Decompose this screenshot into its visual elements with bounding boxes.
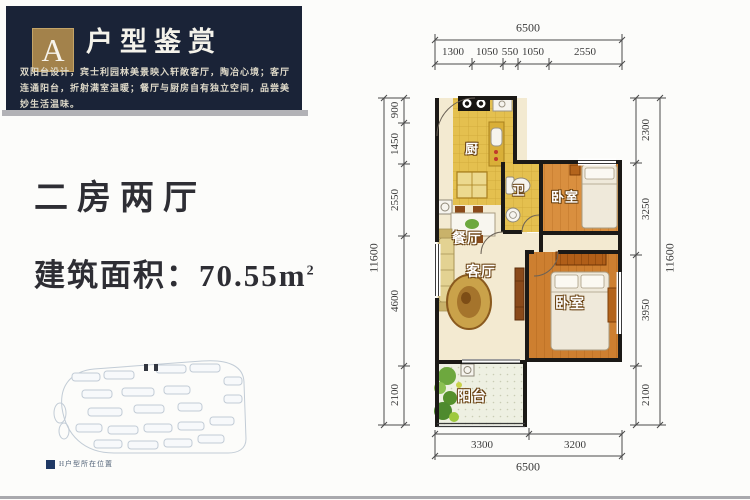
dim-right-seg-3: 3950 (640, 299, 652, 321)
flyer-page: A 户型鉴赏 双阳台设计，宾士利园林美景映入轩敞客厅，陶冶心境；客厅连通阳台，折… (0, 0, 750, 500)
page-bottom-border (0, 496, 750, 499)
dim-top-seg-4: 1050 (522, 46, 544, 58)
legend-label: H户型所在位置 (59, 459, 113, 469)
dim-top-seg-2: 1050 (476, 46, 498, 58)
dim-top-seg-5: 2550 (574, 46, 596, 58)
dim-left-total: 11600 (367, 243, 382, 273)
room-label-bathroom: 卫 (512, 182, 525, 199)
dim-left-seg-4: 4600 (389, 290, 401, 312)
dim-bottom-seg-1: 3300 (471, 439, 493, 451)
room-label-bedroom-top: 卧室 (551, 187, 579, 206)
dim-left-seg-1: 900 (389, 102, 401, 119)
room-label-living: 客厅 (466, 261, 496, 281)
room-label-bedroom-bottom: 卧室 (555, 293, 585, 313)
legend-swatch-icon (46, 460, 55, 469)
dim-left-seg-5: 2100 (389, 384, 401, 406)
rug-icon (447, 275, 491, 329)
site-plan-sketch (52, 353, 257, 458)
bathroom-sink-icon (506, 208, 520, 222)
site-plan-legend: H户型所在位置 (46, 459, 113, 469)
dim-right-seg-1: 2300 (640, 119, 652, 141)
tv-cabinet-icon (515, 268, 524, 320)
dim-top-seg-3: 550 (502, 46, 519, 58)
dim-left-seg-2: 1450 (389, 133, 401, 155)
room-label-balcony: 阳台 (457, 386, 487, 406)
dim-top-seg-1: 1300 (442, 46, 464, 58)
dim-bottom-seg-2: 3200 (564, 439, 586, 451)
dim-right-seg-2: 3250 (640, 198, 652, 220)
dim-left-seg-3: 2550 (389, 189, 401, 211)
dim-right-seg-4: 2100 (640, 384, 652, 406)
washing-machine-icon (438, 200, 452, 214)
room-label-dining: 餐厅 (452, 228, 482, 248)
dim-right-total: 11600 (663, 243, 678, 273)
room-label-kitchen: 厨 (465, 139, 479, 158)
dim-top-total: 6500 (516, 21, 540, 36)
dim-bottom-total: 6500 (516, 460, 540, 475)
